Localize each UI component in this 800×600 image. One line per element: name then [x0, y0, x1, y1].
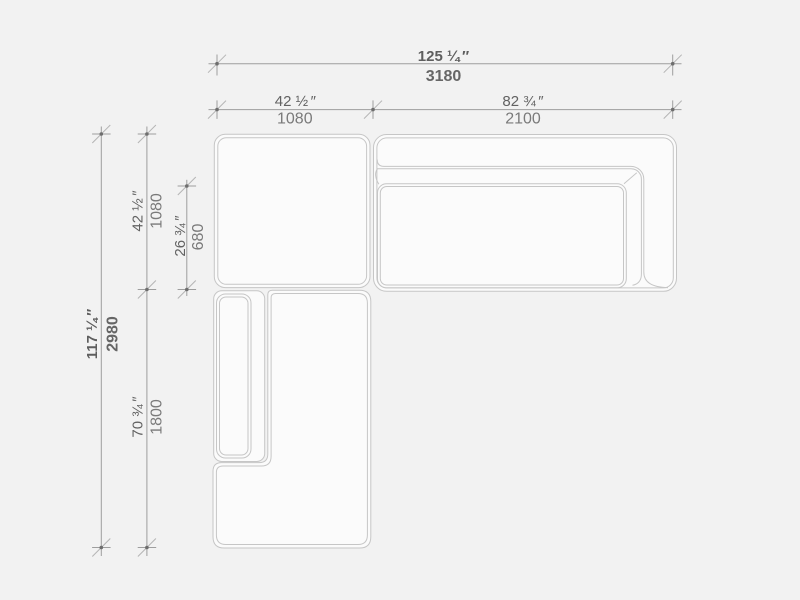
- svg-text:26 ¾″: 26 ¾″: [172, 215, 189, 257]
- svg-text:680: 680: [190, 224, 207, 251]
- svg-text:42 ½″: 42 ½″: [275, 93, 317, 110]
- svg-text:117 ¼″: 117 ¼″: [84, 309, 101, 360]
- svg-text:2100: 2100: [505, 111, 541, 128]
- svg-text:70 ¾″: 70 ¾″: [130, 396, 147, 438]
- svg-text:82 ¾″: 82 ¾″: [502, 93, 544, 110]
- svg-text:1800: 1800: [149, 399, 166, 435]
- svg-text:125 ¼″: 125 ¼″: [418, 48, 469, 65]
- svg-text:2980: 2980: [104, 316, 121, 352]
- svg-text:1080: 1080: [149, 193, 166, 229]
- svg-text:42 ½″: 42 ½″: [130, 190, 147, 232]
- svg-text:1080: 1080: [277, 111, 313, 128]
- svg-text:3180: 3180: [426, 68, 462, 85]
